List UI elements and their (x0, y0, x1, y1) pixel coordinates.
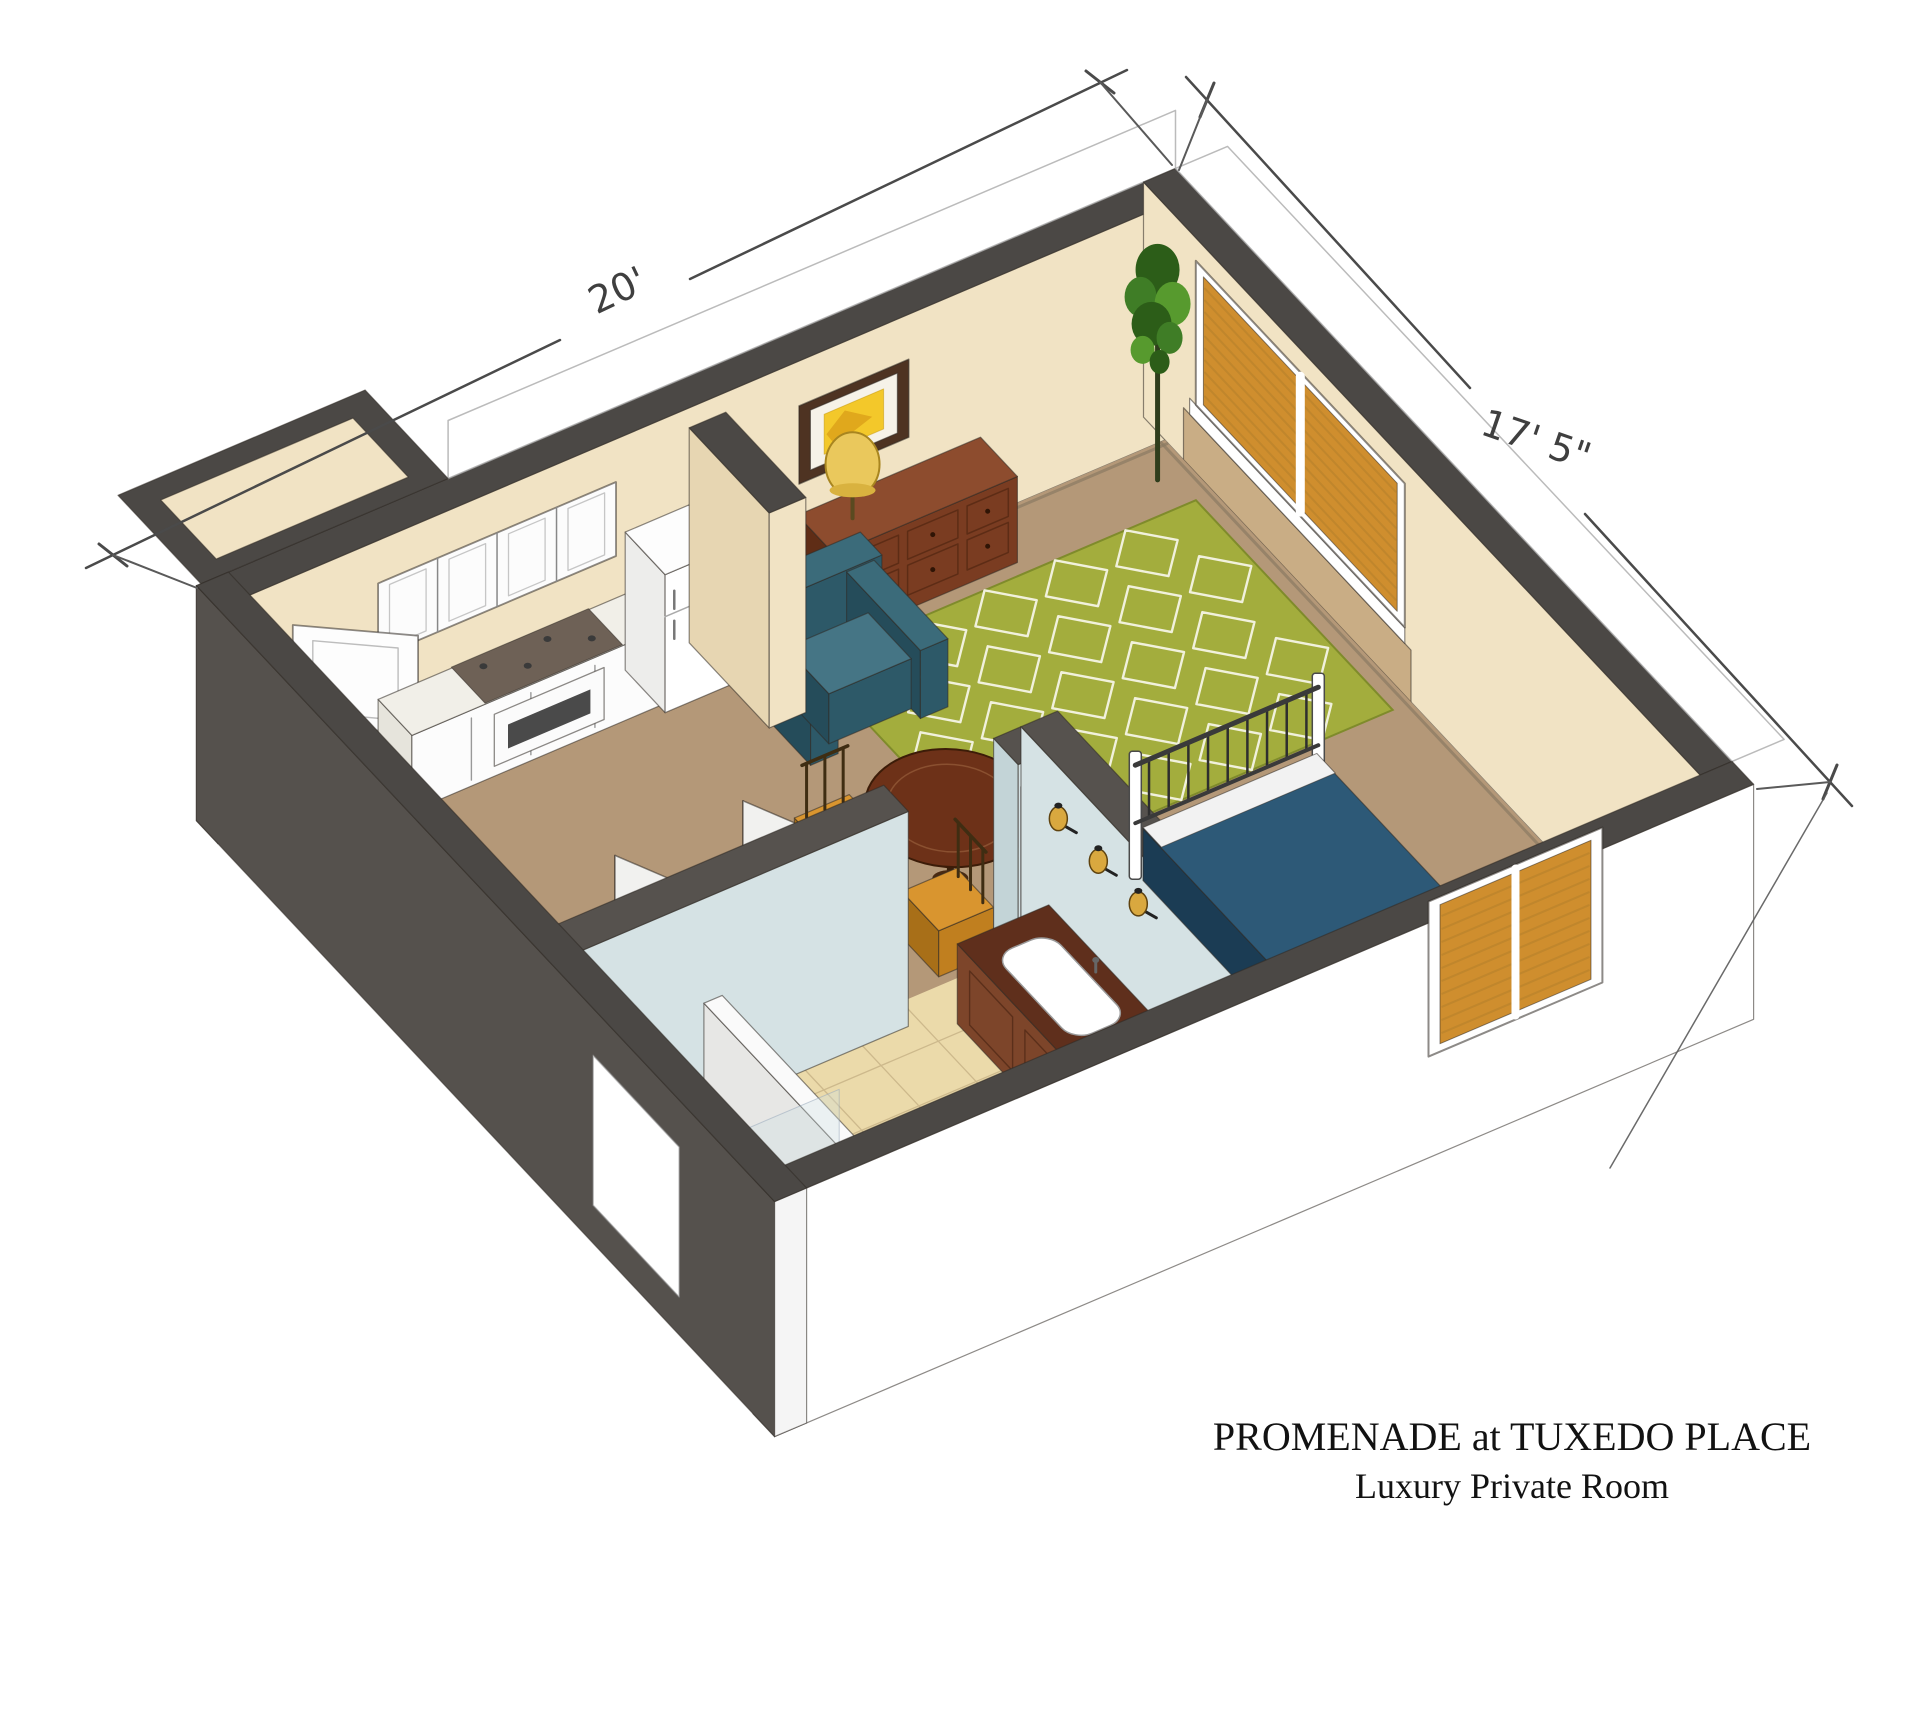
title-line-1: PROMENADE at TUXEDO PLACE (1213, 1414, 1811, 1459)
floor-plan-page: 20' 17' 5" PROMENADE at TUXEDO PLACE Lux… (0, 0, 1920, 1714)
floor-plan-3d-render: 20' 17' 5" PROMENADE at TUXEDO PLACE Lux… (0, 0, 1920, 1714)
dimension-width-label: 20' (581, 258, 653, 323)
floor-plan-graphics (86, 70, 1852, 1437)
title-line-2: Luxury Private Room (1355, 1466, 1669, 1506)
